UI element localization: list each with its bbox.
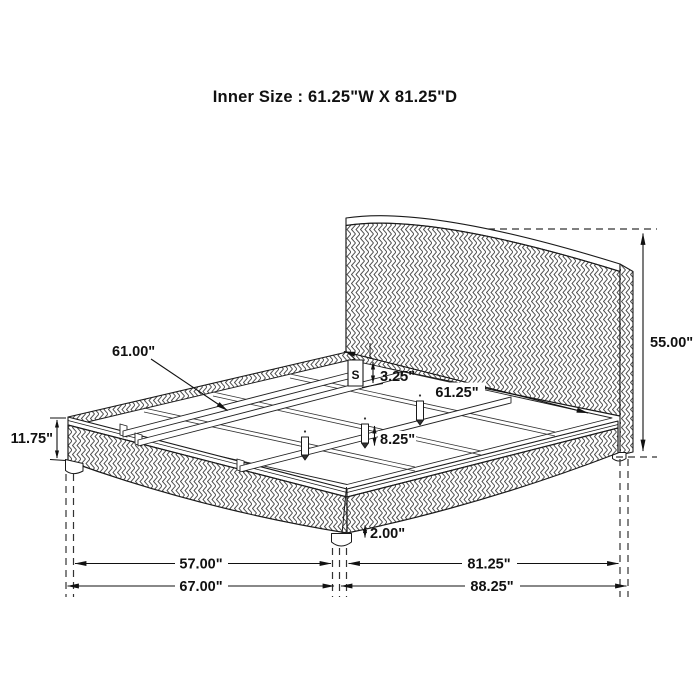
dim-center-leg-height-label: 8.25" [380,432,415,448]
dim-side-rail-height-label: 11.75" [11,431,53,447]
dim-foot-leg-height-label: 2.00" [370,526,405,542]
leg-screw-dot [419,394,421,396]
dim-ledge-height-label: 3.25" [380,369,415,385]
slat-bracket: S [348,360,363,386]
headboard-side-panel [620,264,633,455]
dim-headboard-height-label: 55.00" [650,335,693,351]
dim-foot-leg-height: 2.00" [365,526,405,543]
center-leg-2 [362,424,369,443]
slat-bracket-label: S [351,368,359,382]
leg-screw-dot [364,417,366,419]
dim-overall-depth-label: 88.25" [470,579,513,595]
dim-slat-length-label: 61.00" [112,344,155,360]
dim-inner-width-label: 61.25" [435,385,478,401]
dim-front-inner-width: 57.00" [75,553,331,573]
leg-screw-dot [304,430,306,432]
dim-overall-depth: 88.25" [341,576,627,596]
diagram-title: Inner Size : 61.25"W X 81.25"D [213,88,458,106]
bed-dimension-diagram: Inner Size : 61.25"W X 81.25"D [0,0,700,700]
bed-frame-drawing: S [66,216,634,546]
dim-inner-depth-label: 81.25" [467,557,510,573]
dim-headboard-height: 55.00" [643,234,693,452]
front-corner-leg [332,534,352,547]
dim-inner-depth: 81.25" [349,553,619,573]
center-leg-3 [417,401,424,420]
center-leg-1 [302,437,309,455]
diagram-canvas: Inner Size : 61.25"W X 81.25"D [0,0,700,700]
dim-front-inner-width-label: 57.00" [179,557,222,573]
dim-side-rail-height: 11.75" [11,418,66,461]
dim-overall-width-label: 67.00" [179,579,222,595]
dim-overall-width: 67.00" [68,576,335,596]
